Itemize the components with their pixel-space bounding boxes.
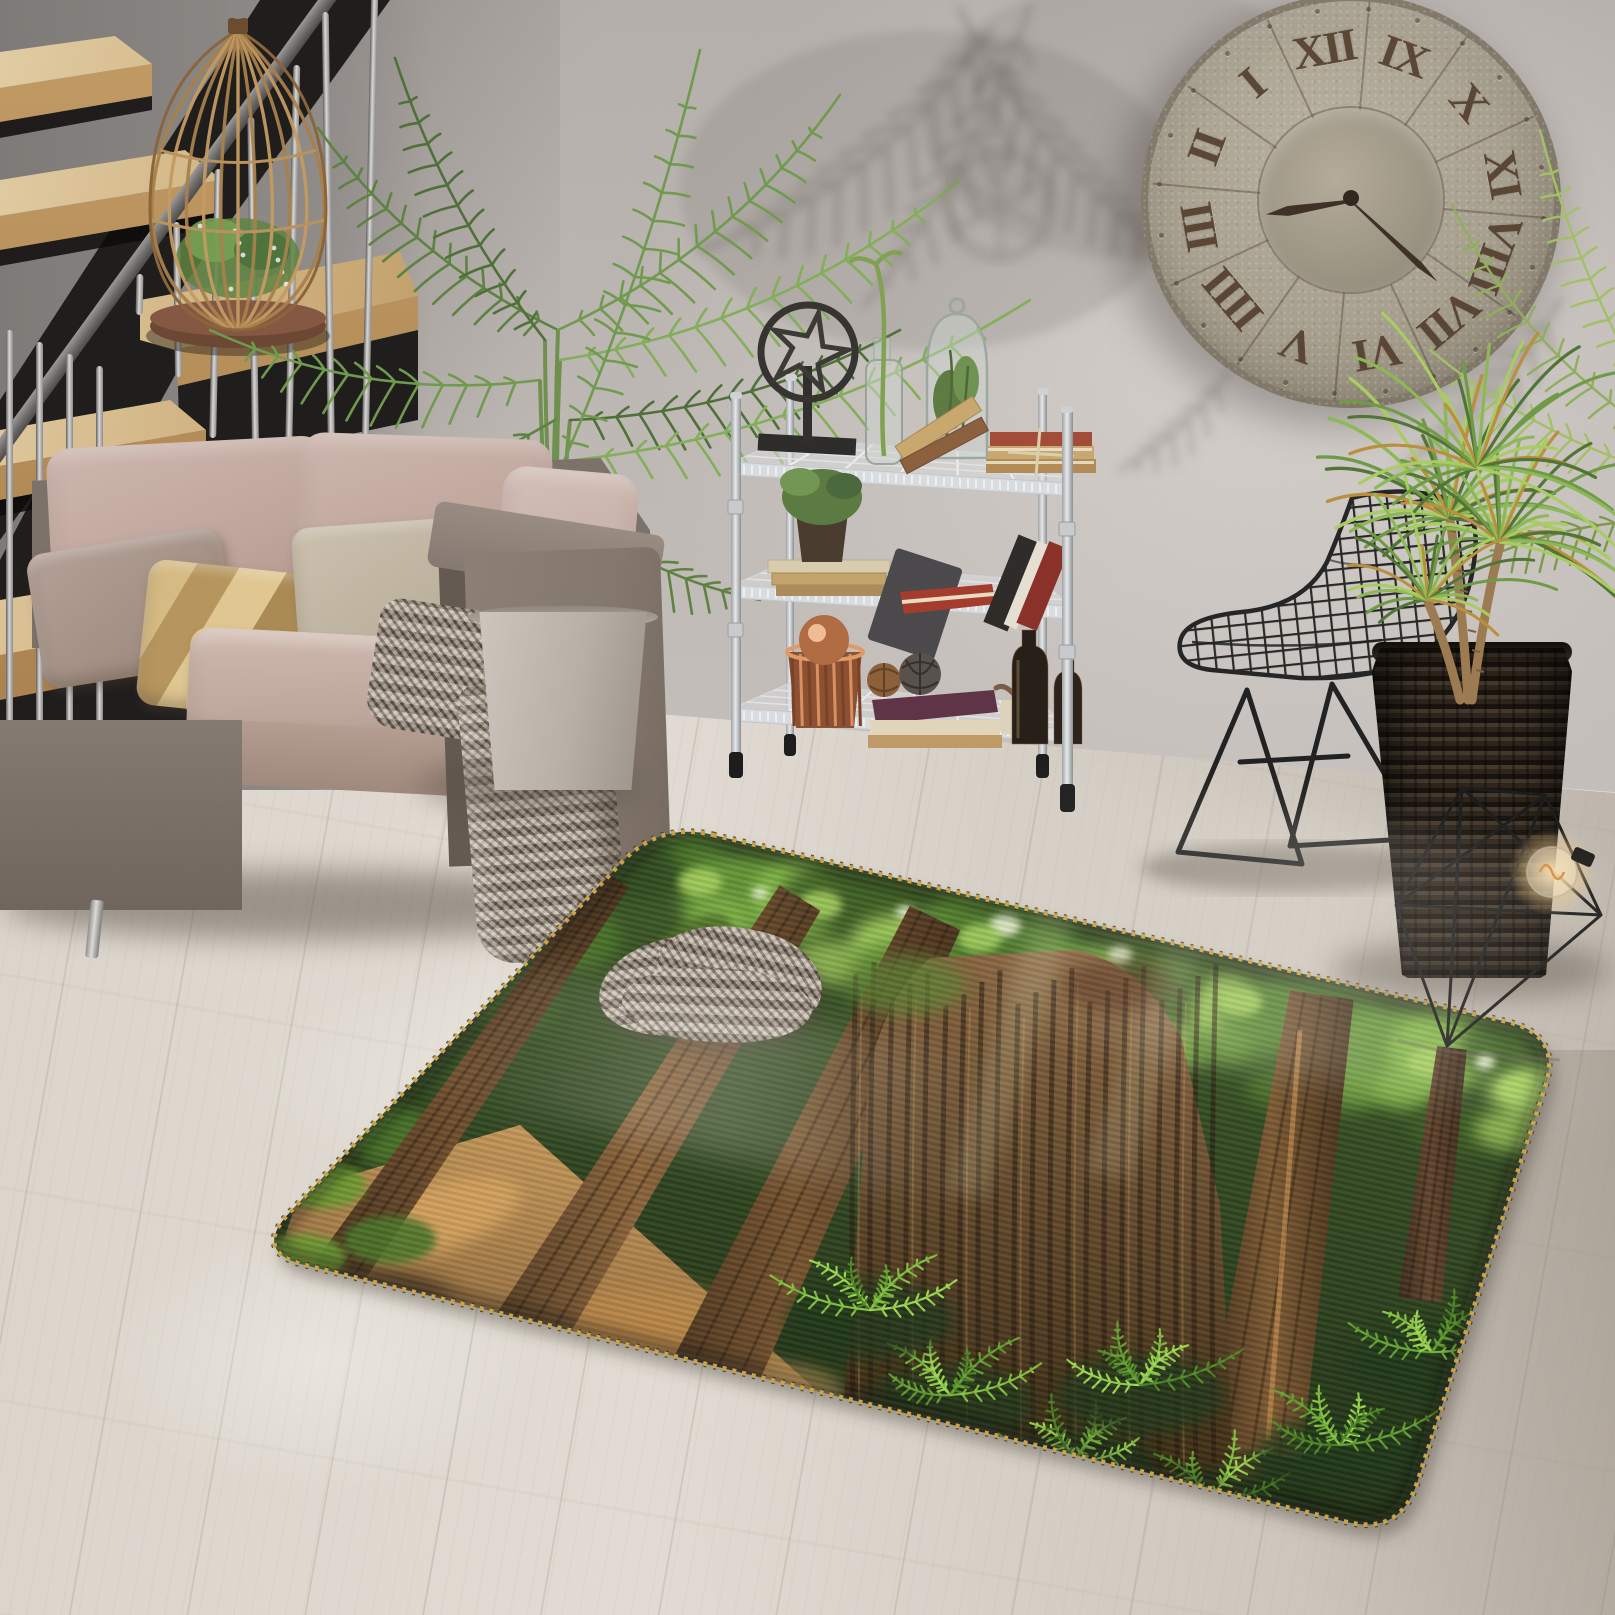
concrete-pot [468, 612, 658, 790]
clock-numeral: XII [1289, 18, 1360, 81]
clock-rivet [1157, 182, 1162, 187]
clock-rivet [1415, 18, 1420, 23]
clock-rivet [1473, 347, 1478, 352]
clock-rivet [1507, 310, 1512, 315]
floor-shade [975, 1050, 1615, 1615]
clock-rivet [1366, 7, 1371, 12]
clock-numeral: III [1169, 200, 1229, 256]
clock-rivet [1431, 374, 1436, 379]
clock-rivet [1159, 233, 1164, 238]
wall-clock: XIIIXXXIVIIIVIIVIVIIIIIIIIII [1141, 0, 1561, 408]
sofa-base [0, 720, 242, 910]
clock-rivet [1460, 41, 1465, 46]
clock-rivet [1383, 389, 1388, 394]
clock-center-cap [1343, 190, 1359, 206]
clock-numeral: XI [1472, 146, 1532, 202]
clock-rivet [1174, 281, 1179, 286]
stair-baluster [136, 274, 144, 315]
clock-rivet [1497, 75, 1502, 80]
clock-numeral: VI [1350, 322, 1406, 382]
living-room-scene: XIIIXXXIVIIIVIIVIVIIIIIIIIII [0, 0, 1615, 1615]
floor-light-reflection [60, 1180, 580, 1540]
clock-rivet [1168, 133, 1173, 138]
